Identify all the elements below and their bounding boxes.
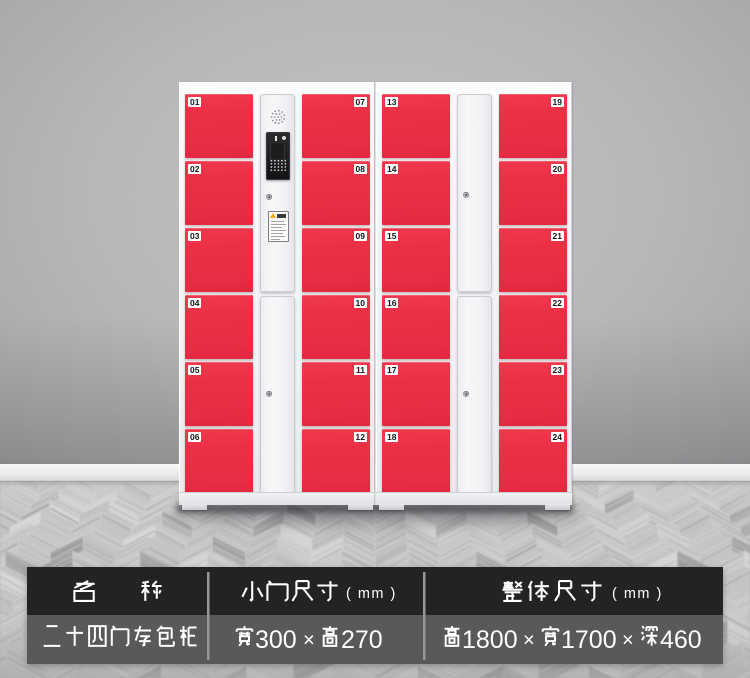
- svg-text:×: ×: [523, 630, 535, 652]
- svg-text:( mm ): ( mm ): [612, 586, 663, 602]
- svg-text:300: 300: [255, 626, 297, 654]
- svg-text:×: ×: [622, 630, 634, 652]
- svg-text:270: 270: [341, 626, 383, 654]
- svg-text:1800: 1800: [462, 626, 518, 654]
- svg-text:1700: 1700: [561, 626, 617, 654]
- svg-text:460: 460: [660, 626, 702, 654]
- svg-text:( mm ): ( mm ): [346, 586, 397, 602]
- svg-text:×: ×: [303, 630, 315, 652]
